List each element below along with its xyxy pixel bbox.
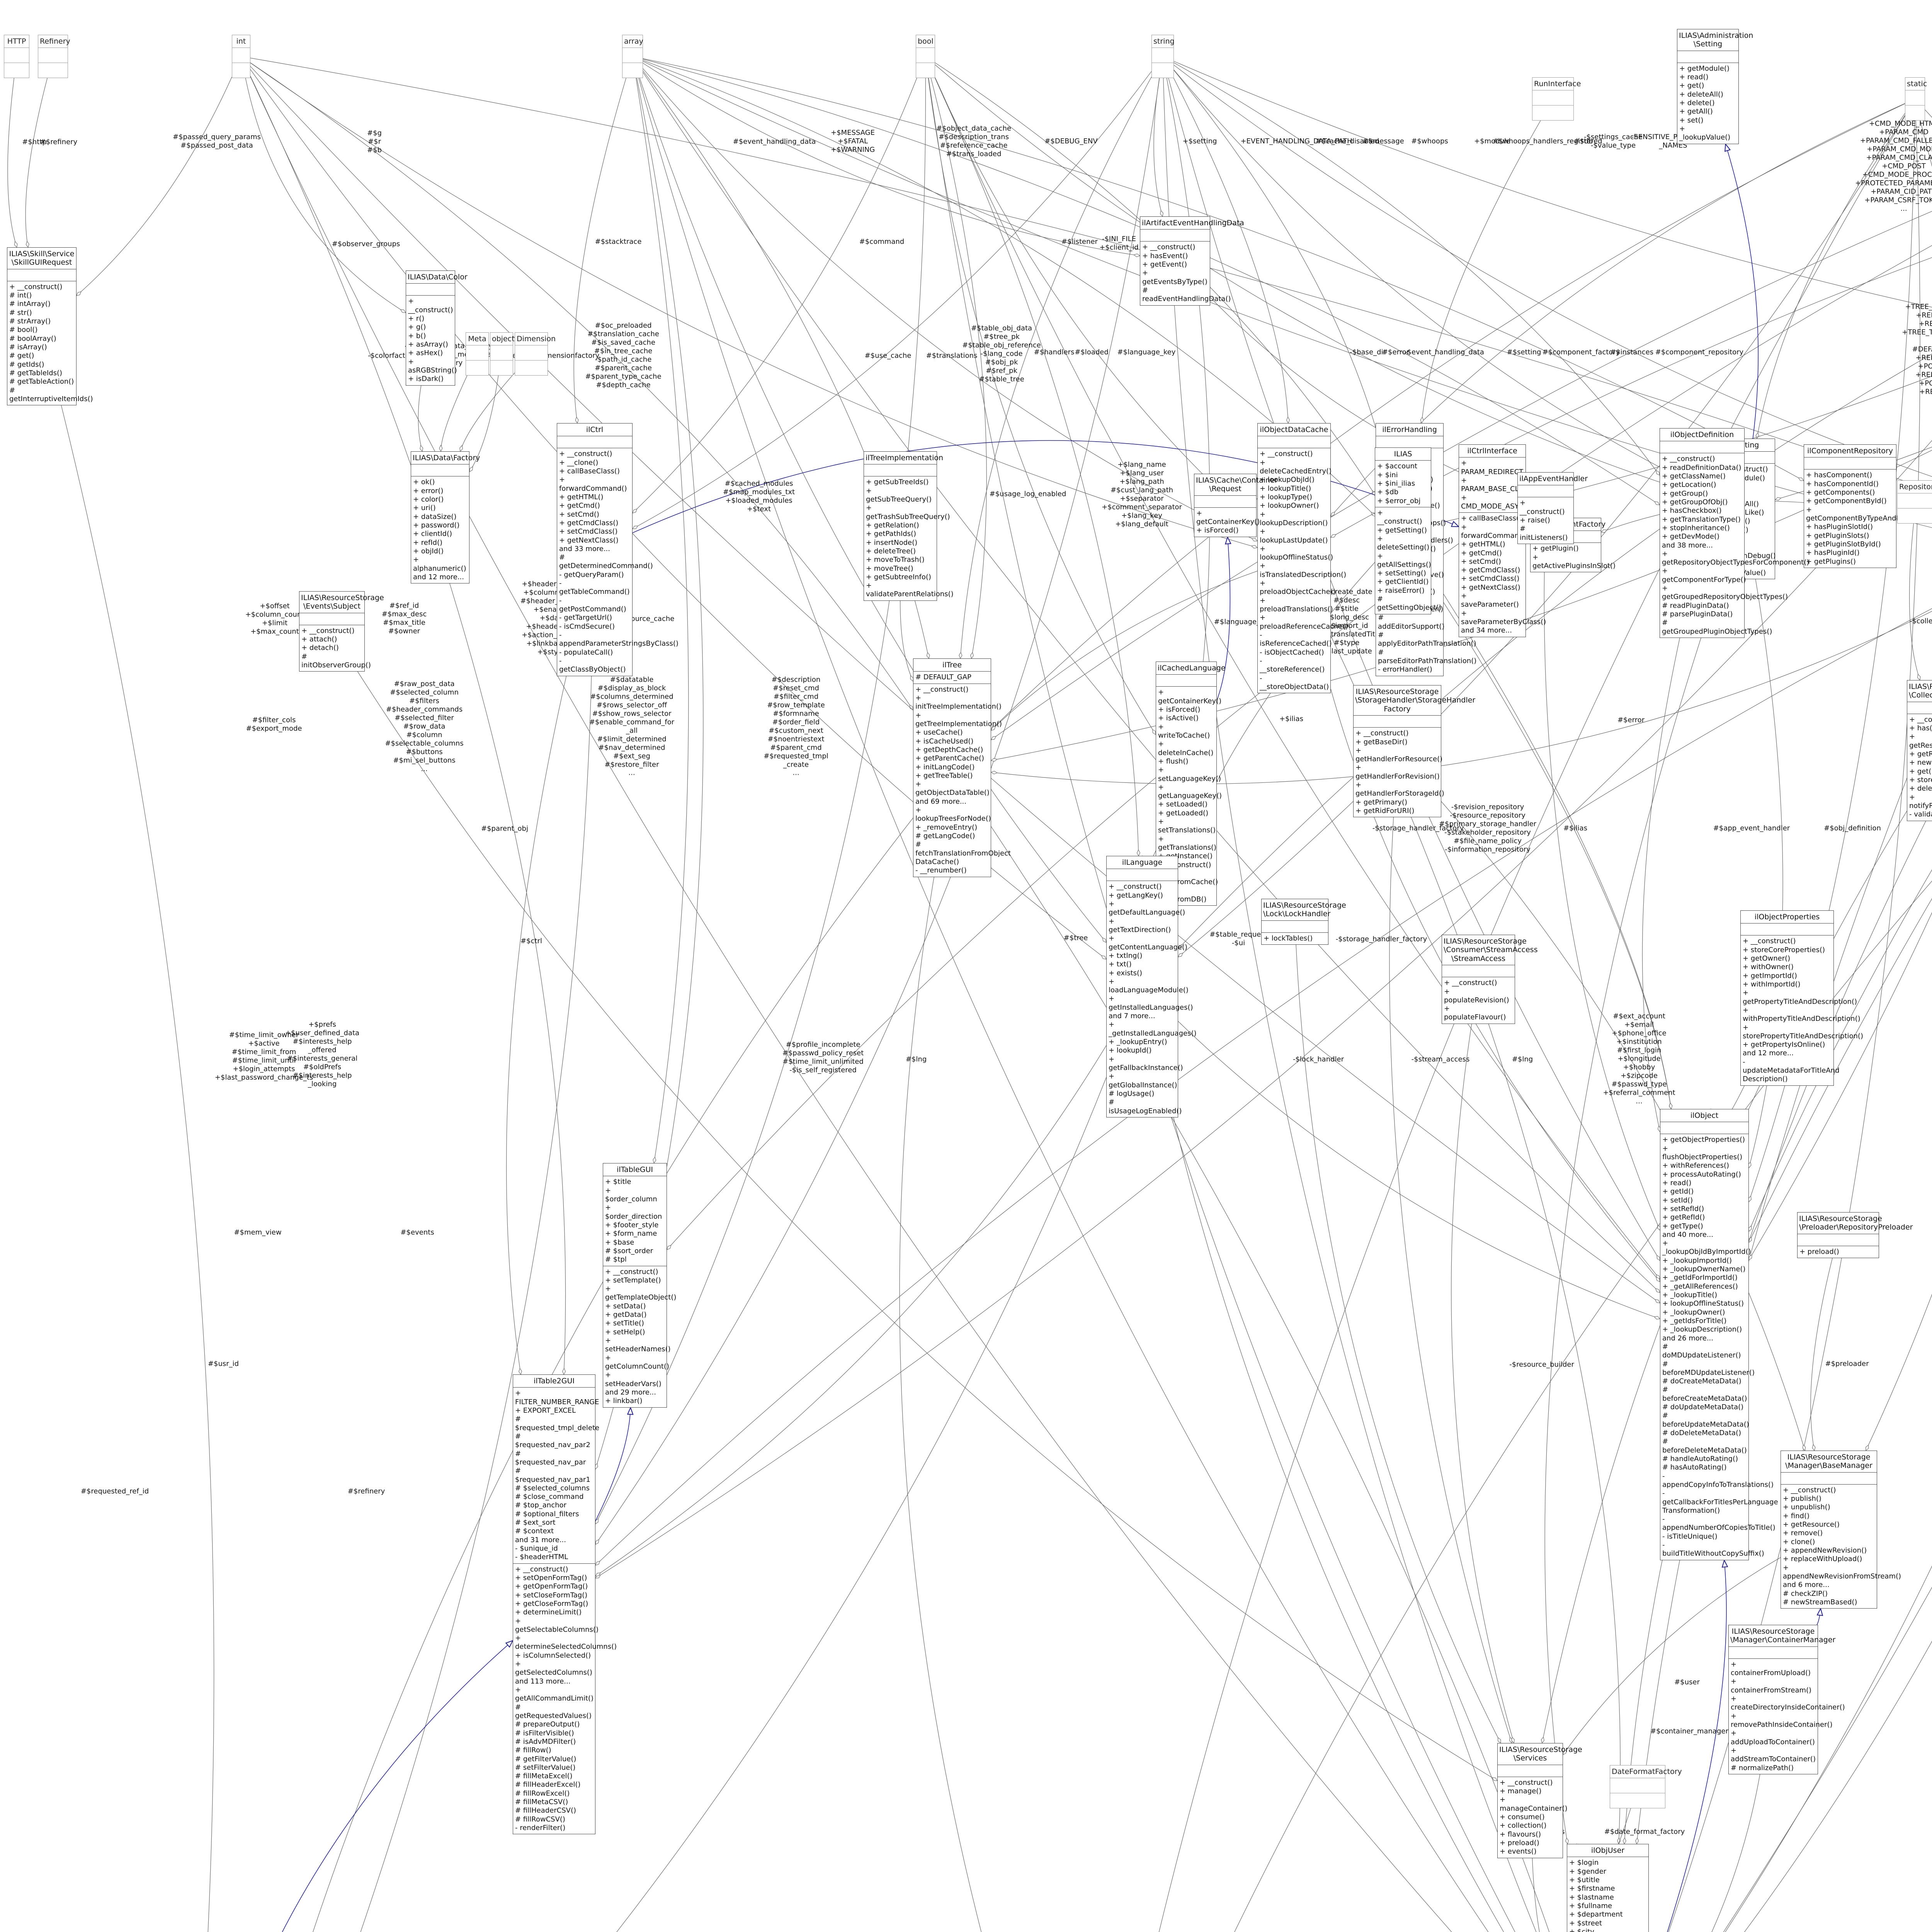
class-node-int[interactable]: int — [232, 35, 250, 78]
class-title: array — [622, 35, 643, 48]
edge-setting-admin_setting — [1726, 144, 1759, 439]
class-methods — [1532, 105, 1573, 120]
class-attributes — [1804, 457, 1896, 469]
class-node-table2gui[interactable]: ilTable2GUI + FILTER_NUMBER_RANGE+ EXPOR… — [513, 1374, 595, 1834]
class-methods: + __construct()+ getBaseDir()+ getHandle… — [1354, 728, 1441, 817]
class-node-ilobject[interactable]: ilObject + getObjectProperties()+ flushO… — [1660, 1109, 1749, 1560]
class-node-repository[interactable]: Repository — [1897, 480, 1932, 524]
edge-label-27: -$INI_FILE +$client_id — [1099, 235, 1138, 252]
edge-label-104: +$prefs +$user_defined_data #$interests_… — [285, 1020, 359, 1088]
class-attributes — [1660, 1122, 1748, 1134]
edge-label-2: #$passed_query_params #$passed_post_data — [173, 133, 261, 150]
class-title: ILIAS\ResourceStorage \Events\Subject — [299, 592, 364, 613]
class-title: ilTree — [913, 659, 991, 672]
class-title: ilArtifactEventHandlingData — [1140, 217, 1210, 230]
class-node-objuser[interactable]: ilObjUser + $login+ $gender+ $utitle+ $f… — [1567, 1844, 1649, 1932]
edge-label-84: -$revision_repository -$resource_reposit… — [1439, 803, 1536, 854]
class-node-bool[interactable]: bool — [916, 35, 935, 78]
class-methods: + __construct()+ attach()+ detach()# ini… — [299, 625, 364, 672]
class-node-color[interactable]: ILIAS\Data\Color + __construct()+ r()+ g… — [406, 270, 455, 386]
edge-label-73: #$description #$reset_cmd #$filter_cmd #… — [764, 675, 828, 777]
edge-const-ilobject — [1749, 121, 1932, 1260]
edge-tree_impl-tree — [900, 601, 913, 681]
edge-label-99: #$ext_account +$email +$phone_office +$i… — [1603, 1012, 1675, 1105]
class-attributes — [4, 48, 29, 63]
class-attributes: + $title+ $order_column+ $order_directio… — [603, 1176, 667, 1266]
class-node-data_factory[interactable]: ILIAS\Data\Factory + ok()+ error()+ colo… — [411, 451, 469, 583]
edge-label-115: #$date_format_factory — [1604, 1828, 1685, 1836]
class-node-component_repository[interactable]: ilComponentRepository + hasComponent()+ … — [1804, 444, 1896, 568]
class-node-storage_handler_factory[interactable]: ILIAS\ResourceStorage \StorageHandler\St… — [1353, 685, 1441, 817]
edge-lock_handler-services — [1296, 945, 1501, 1743]
class-attributes — [1907, 702, 1932, 714]
class-node-base_manager[interactable]: ILIAS\ResourceStorage \Manager\BaseManag… — [1781, 1451, 1877, 1609]
class-methods — [4, 63, 29, 78]
edge-label-32: #$loaded — [1075, 348, 1109, 357]
edge-label-7: #$DEBUG_ENV — [1044, 137, 1097, 146]
class-attributes — [490, 345, 513, 361]
edge-services-objuser — [1532, 1858, 1567, 1932]
edge-label-106: #$events — [400, 1228, 434, 1237]
class-attributes — [1156, 675, 1216, 687]
class-methods — [1610, 1793, 1665, 1808]
class-node-language[interactable]: ilLanguage + __construct()+ getLangKey()… — [1106, 856, 1178, 1117]
class-node-obj_data_cache[interactable]: ilObjectDataCache + __construct()+ delet… — [1257, 423, 1331, 693]
class-title: ilObjectDataCache — [1258, 423, 1330, 436]
edge-label-52: #$use_cache — [865, 352, 912, 360]
edge-label-109: #$preloader — [1825, 1360, 1869, 1368]
class-attributes — [916, 48, 935, 63]
edge-obj_data_cache-tree — [991, 571, 1257, 731]
class-methods: + lockTables() — [1262, 933, 1328, 944]
edge-array-component_repository — [643, 59, 1804, 481]
class-methods — [466, 361, 488, 375]
class-node-ilias[interactable]: ILIAS + $account+ $ini+ $ini_ilias+ $db+… — [1375, 447, 1431, 614]
class-node-services[interactable]: ILIAS\ResourceStorage \Services + __cons… — [1497, 1743, 1563, 1858]
class-node-tree_impl[interactable]: ilTreeImplementation + getSubTreeIds()+ … — [864, 451, 937, 601]
class-title: ILIAS\ResourceStorage \Services — [1498, 1743, 1563, 1765]
class-attributes — [1258, 436, 1330, 448]
edge-label-51: #$oc_preloaded #$translation_cache #$is_… — [585, 321, 661, 389]
edge-label-93: #$ctrl — [520, 937, 542, 946]
class-title: ilCachedLanguage — [1156, 662, 1216, 675]
class-node-tree[interactable]: ilTree # DEFAULT_GAP + __construct()+ in… — [913, 658, 991, 877]
edge-label-79: #$raw_post_data #$selected_column #$filt… — [385, 680, 463, 773]
class-attributes — [864, 464, 937, 476]
edge-repository-coll_builder — [1910, 524, 1920, 680]
edge-runinterface-error_handling — [1422, 121, 1541, 423]
class-title: ILIAS\ResourceStorage \Manager\BaseManag… — [1781, 1451, 1877, 1473]
edge-label-67: -$collection_repository — [1910, 617, 1932, 626]
class-methods: + preload() — [1798, 1246, 1879, 1258]
edge-label-36: -$event_handling_data — [1405, 348, 1484, 357]
class-methods: + __construct()+ has()+ getResourceIdStr… — [1907, 714, 1932, 821]
class-node-ctrl_interface[interactable]: ilCtrlInterface + PARAM_REDIRECT+ PARAM_… — [1459, 444, 1526, 637]
edge-label-95: #$lng — [906, 1055, 927, 1064]
class-attributes: # DEFAULT_GAP — [913, 672, 991, 684]
class-methods: + ok()+ error()+ color()+ uri()+ dataSiz… — [411, 476, 469, 583]
class-title: ILIAS\ResourceStorage \StorageHandler\St… — [1354, 685, 1441, 716]
class-methods: + __construct()+ getSetting()+ deleteSet… — [1375, 507, 1431, 614]
class-attributes — [411, 464, 469, 476]
edge-label-4: #$event_handling_data — [733, 138, 816, 146]
edge-int-color — [245, 78, 406, 313]
class-methods: + getModule()+ read()+ get()+ deleteAll(… — [1677, 63, 1738, 144]
class-node-artifact_event[interactable]: ilArtifactEventHandlingData + __construc… — [1140, 216, 1210, 306]
class-methods: + getObjectProperties()+ flushObjectProp… — [1660, 1134, 1748, 1560]
class-node-obj_definition[interactable]: ilObjectDefinition + __construct()+ read… — [1660, 428, 1745, 638]
edge-label-33: #$language_key — [1117, 348, 1176, 357]
class-attributes — [1677, 51, 1738, 63]
class-node-admin_setting[interactable]: ILIAS\Administration \Setting + getModul… — [1677, 29, 1739, 144]
edge-label-74: +$ilias — [1279, 715, 1303, 723]
class-methods: + containerFromUpload()+ containerFromSt… — [1729, 1659, 1818, 1774]
class-methods: + __construct()+ populateRevision()+ pop… — [1442, 977, 1515, 1024]
edge-label-5: +$MESSAGE +$FATAL +$WARNING — [831, 129, 875, 154]
edge-label-11: #$message — [1362, 137, 1404, 146]
edge-label-97: -$stream_access — [1412, 1055, 1470, 1064]
class-attributes — [1741, 923, 1833, 935]
class-node-static[interactable]: static — [1905, 77, 1925, 121]
edge-label-86: #$app_event_handler — [1713, 824, 1790, 833]
class-title: ILIAS\Data\Color — [406, 271, 455, 284]
class-node-stream_access[interactable]: ILIAS\ResourceStorage \Consumer\StreamAc… — [1442, 935, 1515, 1024]
class-methods: + hasComponent()+ hasComponentId()+ getC… — [1804, 469, 1896, 567]
edge-label-8: +$setting — [1183, 137, 1217, 146]
class-title: ilTreeImplementation — [864, 452, 937, 464]
edge-label-90: #$tree — [1064, 934, 1088, 942]
edge-label-111: #$refinery — [348, 1487, 385, 1496]
edge-string-obj_definition — [1174, 63, 1660, 475]
class-title: ilTableGUI — [603, 1163, 667, 1176]
class-methods: + __construct()+ manage()+ manageContain… — [1498, 1777, 1563, 1858]
class-title: ilObjUser — [1567, 1844, 1648, 1857]
edge-skill_gui_request-target — [61, 405, 214, 1932]
edge-label-110: #$requested_ref_id — [81, 1487, 149, 1496]
edge-refinery-skill_gui_request — [26, 78, 47, 247]
edge-label-23: #$observer_groups — [332, 240, 400, 248]
class-node-http[interactable]: HTTP — [4, 35, 29, 78]
edge-label-55: +$lang_name +$lang_user +$lang_path #$cu… — [1102, 461, 1182, 529]
class-title: Repository — [1898, 481, 1932, 493]
class-title: object — [490, 333, 513, 345]
class-title: ilCtrl — [557, 423, 632, 436]
class-title: ilTable2GUI — [513, 1375, 595, 1388]
class-node-repo_preloader[interactable]: ILIAS\ResourceStorage \Preloader\Reposit… — [1797, 1212, 1879, 1258]
class-methods: + getSubTreeIds()+ getSubTreeQuery()+ ge… — [864, 476, 937, 600]
edge-dimension-data_factory — [460, 373, 515, 451]
edge-label-56: #$usage_log_enabled — [990, 490, 1066, 498]
edge-repo_preloader-base_manager — [1811, 1258, 1832, 1451]
edge-app_event_handler-ilobject — [1544, 544, 1660, 1230]
class-node-app_event_handler[interactable]: ilAppEventHandler + __construct()+ raise… — [1517, 472, 1574, 544]
class-methods: + __construct()+ getLangKey()+ getDefaul… — [1107, 881, 1178, 1117]
class-attributes — [1194, 496, 1256, 508]
class-title: string — [1152, 35, 1173, 48]
class-attributes — [1152, 48, 1173, 63]
class-methods: + __construct()+ hasEvent()+ getEvent()+… — [1140, 241, 1210, 305]
edge-label-38: #$component_factory — [1543, 348, 1620, 357]
class-methods: + __construct()+ initTreeImplementation(… — [913, 684, 991, 877]
class-attributes — [1354, 716, 1441, 728]
class-title: ILIAS\Administration \Setting — [1677, 29, 1738, 51]
edge-label-113: #$container_manager — [1650, 1727, 1728, 1736]
class-node-date_format_factory[interactable]: DateFormatFactory — [1610, 1765, 1665, 1808]
class-title: ILIAS\ResourceStorage \Lock\LockHandler — [1262, 899, 1328, 921]
class-node-lock_handler[interactable]: ILIAS\ResourceStorage \Lock\LockHandler … — [1261, 899, 1328, 945]
edge-container_manager-base_manager — [1817, 1609, 1821, 1625]
class-attributes — [1262, 921, 1328, 933]
class-attributes: + PARAM_REDIRECT+ PARAM_BASE_CLASS+ CMD_… — [1459, 457, 1526, 513]
class-attributes — [1660, 441, 1744, 453]
class-node-tablegui[interactable]: ilTableGUI + $title+ $order_column+ $ord… — [603, 1163, 667, 1408]
class-node-objectbox[interactable]: object — [490, 332, 513, 376]
class-methods — [490, 361, 513, 375]
class-methods — [232, 63, 250, 78]
class-attributes — [1729, 1647, 1818, 1659]
edge-label-105: #$mem_view — [234, 1228, 281, 1237]
class-methods — [1898, 509, 1932, 523]
class-node-obj_properties[interactable]: ilObjectProperties + __construct()+ stor… — [1740, 910, 1834, 1086]
class-attributes — [299, 613, 364, 625]
class-methods — [916, 63, 935, 78]
class-attributes — [557, 436, 632, 448]
class-title: ilComponentRepository — [1804, 445, 1896, 457]
edge-target-table2gui — [166, 1641, 513, 1932]
class-methods — [515, 361, 548, 375]
class-methods: + __construct()# int()# intArray()# str(… — [7, 281, 76, 405]
class-methods: + callBaseClass()+ forwardCommand()+ get… — [1459, 513, 1526, 636]
class-title: Meta — [466, 333, 488, 345]
class-attributes: + $login+ $gender+ $utitle+ $firstname+ … — [1567, 1857, 1648, 1932]
edge-label-34: -$base_dir — [1350, 348, 1386, 357]
edge-label-62: #$ref_id #$max_desc #$max_title #$owner — [382, 602, 427, 636]
class-title: ILIAS\Cache\Container \Request — [1194, 474, 1256, 496]
class-title: ilObject — [1660, 1109, 1748, 1122]
edge-label-1: #$refinery — [40, 138, 78, 146]
class-attributes — [1898, 493, 1932, 509]
class-title: ILIAS\Data\Factory — [411, 452, 469, 464]
edge-label-92: -$storage_handler_factory — [1336, 935, 1427, 944]
class-title: HTTP — [4, 35, 29, 48]
class-attributes — [1498, 1765, 1563, 1777]
edge-label-37: #$setting — [1507, 348, 1541, 357]
class-node-array[interactable]: array — [622, 35, 643, 78]
edge-objectdic-ilobject — [1749, 270, 1932, 1231]
edge-color-data_factory — [418, 386, 422, 451]
edge-array-artifact_event — [643, 63, 1140, 256]
class-methods: + __construct()+ __clone()+ callBaseClas… — [557, 448, 632, 675]
edge-label-98: #$lng — [1512, 1055, 1533, 1064]
edge-stream_access-services — [1451, 1024, 1514, 1743]
class-attributes: + $account+ $ini+ $ini_ilias+ $db+ $erro… — [1375, 461, 1431, 507]
class-attributes — [232, 48, 250, 63]
class-methods: + __construct()+ readDefinitionData()+ g… — [1660, 453, 1744, 638]
class-node-runinterface[interactable]: RunInterface — [1532, 77, 1574, 121]
edge-objuser-ilobject — [1649, 1560, 1726, 1932]
class-attributes — [406, 284, 455, 296]
class-title: Dimension — [515, 333, 548, 345]
class-node-meta[interactable]: Meta — [466, 332, 489, 376]
edge-meta-data_factory — [441, 376, 467, 451]
class-title: Refinery — [38, 35, 68, 48]
edge-label-39: #$instances — [1610, 348, 1653, 357]
edge-label-63: +$offset +$column_count +$limit +$max_co… — [245, 602, 304, 636]
class-title: bool — [916, 35, 935, 48]
edge-tree-rbac_system — [900, 877, 1059, 1932]
edge-label-81: #$filter_cols #$export_mode — [246, 716, 302, 733]
edge-label-12: #$whoops — [1411, 137, 1448, 146]
edge-label-112: #$user — [1674, 1678, 1700, 1687]
class-attributes — [1107, 869, 1178, 881]
edge-label-80: #$datatable #$display_as_block #$columns… — [589, 675, 674, 777]
edge-label-6: #$object_data_cache #$description_trans … — [936, 124, 1011, 158]
class-node-skill_gui_request[interactable]: ILIAS\Skill\Service \SkillGUIRequest + _… — [7, 247, 77, 405]
class-node-cache_request[interactable]: ILIAS\Cache\Container \Request + getCont… — [1194, 474, 1257, 537]
class-node-refinery[interactable]: Refinery — [38, 35, 68, 78]
class-attributes — [1140, 230, 1210, 241]
class-attributes — [1376, 436, 1443, 448]
class-title: ilAppEventHandler — [1518, 473, 1573, 485]
edge-label-24: #$stacktrace — [595, 238, 642, 246]
class-attributes: + FILTER_NUMBER_RANGE+ EXPORT_EXCEL# $re… — [513, 1388, 595, 1563]
class-title: ILIAS — [1375, 448, 1431, 461]
class-title: ILIAS\ResourceStorage \Preloader\Reposit… — [1798, 1213, 1879, 1234]
class-attributes — [466, 345, 488, 361]
edge-int-skill_gui_request — [77, 77, 232, 296]
class-title: ilErrorHandling — [1376, 423, 1443, 436]
class-methods: + __construct()+ setTemplate()+ getTempl… — [603, 1266, 667, 1407]
class-node-dimension[interactable]: Dimension — [515, 332, 548, 376]
edge-language-ilobject — [1178, 1021, 1660, 1319]
class-attributes — [1781, 1473, 1877, 1485]
edge-label-18: +CMD_MODE_HTML +PARAM_CMD +PARAM_CMD_FAL… — [1855, 119, 1932, 213]
class-title: ILIAS\ResourceStorage \Collection\Collec… — [1907, 680, 1932, 702]
edge-label-41: +TREE_TYPE_NESTED_SET +RELATION_PARENT +… — [1902, 303, 1932, 404]
class-attributes — [1798, 1234, 1879, 1246]
class-methods — [1152, 63, 1173, 78]
class-title: ILIAS\Skill\Service \SkillGUIRequest — [7, 248, 76, 269]
class-attributes — [622, 48, 643, 63]
edge-label-107: #$usr_id — [208, 1360, 239, 1368]
class-methods — [622, 63, 643, 78]
edge-layer — [0, 0, 1932, 1932]
class-title: static — [1905, 78, 1925, 90]
edge-label-26: #$listener — [1061, 238, 1098, 246]
edge-label-59: #$cached_modules #$map_modules_txt +$loa… — [723, 480, 795, 514]
edge-label-87: #$obj_definition — [1824, 824, 1881, 833]
class-title: ilLanguage — [1107, 856, 1178, 869]
edge-label-25: #$command — [859, 238, 904, 246]
class-title: ilObjectProperties — [1741, 911, 1833, 923]
class-title: int — [232, 35, 250, 48]
class-node-events_subject[interactable]: ILIAS\ResourceStorage \Events\Subject + … — [299, 591, 365, 672]
class-title: ILIAS\ResourceStorage \Consumer\StreamAc… — [1442, 935, 1515, 965]
edge-label-75: #$error — [1617, 716, 1645, 724]
edge-static-tree — [991, 104, 1905, 730]
class-node-string[interactable]: string — [1151, 35, 1174, 78]
class-attributes — [1610, 1778, 1665, 1793]
class-methods: + __construct()+ publish()+ unpublish()+… — [1781, 1485, 1877, 1608]
edge-label-85: #$ilias — [1563, 824, 1587, 833]
class-methods — [1905, 105, 1925, 120]
edge-container_manager-objuser — [1649, 1774, 1760, 1932]
class-methods: + __construct()+ raise()# initListeners(… — [1518, 497, 1573, 544]
class-methods: + __construct()+ storeCoreProperties()+ … — [1741, 935, 1833, 1085]
class-attributes — [1905, 90, 1925, 105]
edge-label-40: #$component_repository — [1655, 348, 1743, 357]
edge-ctrl-table2gui — [507, 676, 566, 1374]
class-methods: + __construct()+ deleteCachedEntry()+ lo… — [1258, 448, 1330, 693]
edge-label-3: #$g #$r #$b — [367, 129, 382, 155]
class-title: ILIAS\ResourceStorage \Manager\Container… — [1729, 1625, 1818, 1647]
class-methods: + __construct()+ r()+ g()+ b()+ asArray(… — [406, 296, 455, 385]
class-attributes — [1442, 965, 1515, 977]
class-attributes — [1518, 485, 1573, 497]
class-methods: + getContainerKey()+ isForced() — [1194, 508, 1256, 537]
edge-language-table2gui — [595, 1046, 1106, 1576]
edge-string-artifact_event — [1154, 78, 1163, 216]
class-attributes — [1532, 90, 1573, 105]
class-node-coll_builder[interactable]: ILIAS\ResourceStorage \Collection\Collec… — [1907, 680, 1932, 821]
edge-string-table2gui — [595, 78, 1160, 1544]
class-title: RunInterface — [1532, 78, 1573, 90]
class-title: DateFormatFactory — [1610, 1765, 1665, 1778]
class-title: ilObjectDefinition — [1660, 429, 1744, 441]
class-node-ctrl[interactable]: ilCtrl + __construct()+ __clone()+ callB… — [557, 423, 633, 676]
class-methods: + getPlugin()+ getActivePluginsInSlot() — [1531, 543, 1601, 572]
edge-label-54: #$table_obj_data #$tree_pk #$table_obj_r… — [962, 324, 1041, 384]
edge-storage_handler_factory-base_manager — [1441, 801, 1805, 1451]
edge-label-108: -$resource_builder — [1509, 1361, 1574, 1369]
class-attributes — [515, 345, 548, 361]
edge-label-89: #$parent_obj — [481, 825, 528, 833]
class-methods — [38, 63, 68, 78]
class-attributes — [7, 269, 76, 281]
edge-label-96: -$lock_handler — [1293, 1055, 1344, 1064]
edge-http-skill_gui_request — [8, 78, 17, 247]
edge-label-91: #$table_request -$ui — [1209, 930, 1267, 947]
class-attributes — [38, 48, 68, 63]
uml-collaboration-diagram: HTTP Refinery int array bool string RunI… — [0, 0, 1932, 1932]
class-methods: + __construct()+ setOpenFormTag()+ getOp… — [513, 1564, 595, 1834]
edge-label-94: #$profile_incomplete #$passwd_policy_res… — [782, 1041, 864, 1075]
class-node-container_manager[interactable]: ILIAS\ResourceStorage \Manager\Container… — [1728, 1625, 1818, 1774]
class-title: ilCtrlInterface — [1459, 445, 1526, 457]
